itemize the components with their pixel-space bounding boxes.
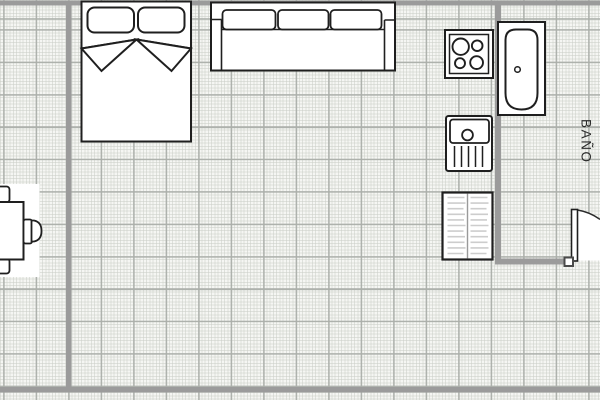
- sofa-back-cushion-3: [331, 10, 382, 30]
- floor-plan-canvas: BAÑO: [0, 0, 600, 400]
- bed-pillow-right: [138, 8, 185, 33]
- sofa-back-cushion-1: [223, 10, 276, 30]
- door-leaf: [572, 210, 578, 262]
- sofa: [211, 3, 395, 71]
- bed-pillow-left: [88, 8, 135, 33]
- chair-bottom: [0, 259, 10, 274]
- bathtub-drain: [515, 67, 521, 73]
- wardrobe-shelf-unit: [443, 193, 493, 260]
- floor-plan-drawing: BAÑO: [0, 0, 600, 400]
- double-bed: [82, 2, 192, 142]
- door: [565, 210, 600, 267]
- bathtub: [498, 22, 545, 115]
- chair-right-seat: [32, 221, 42, 242]
- table-top: [0, 202, 24, 260]
- stove-burner-large: [453, 39, 469, 55]
- chair-top: [0, 187, 10, 203]
- bathtub-basin: [506, 30, 538, 110]
- bathroom-label: BAÑO: [579, 119, 594, 164]
- stove-cooktop: [445, 30, 493, 78]
- wall-bottom: [0, 387, 600, 393]
- sink-drain: [462, 130, 473, 141]
- wall-bathroom-bottom: [495, 259, 567, 265]
- stove-outer: [445, 30, 493, 78]
- door-hinge-block: [565, 258, 574, 267]
- stove-burner-small-2: [455, 58, 465, 68]
- sofa-back-cushion-2: [278, 10, 329, 30]
- stove-burner-medium: [470, 56, 483, 69]
- sink: [446, 116, 492, 171]
- wall-left-interior: [66, 1, 72, 393]
- table-with-chairs: [0, 184, 42, 277]
- stove-burner-small-1: [472, 40, 483, 51]
